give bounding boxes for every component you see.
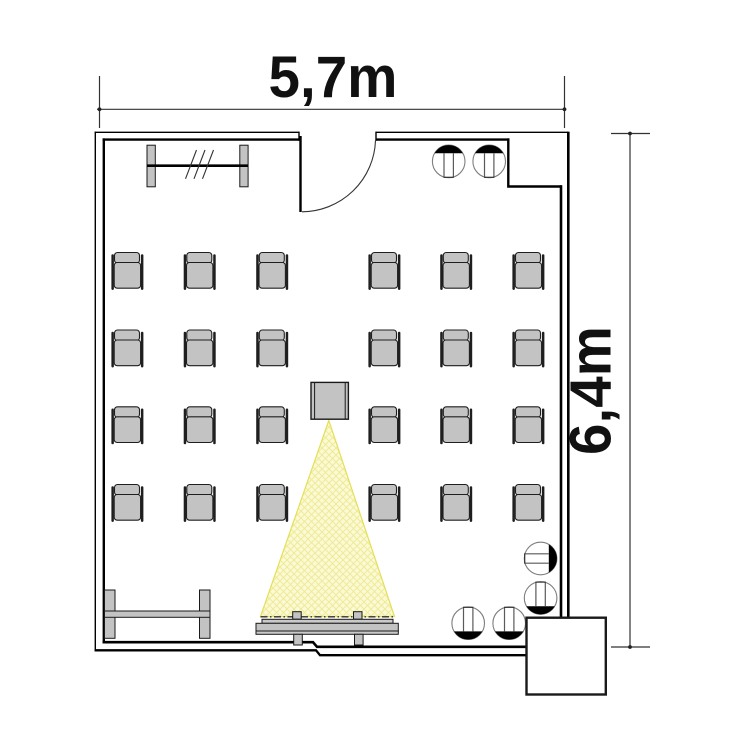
svg-text:5,7m: 5,7m xyxy=(269,45,398,110)
